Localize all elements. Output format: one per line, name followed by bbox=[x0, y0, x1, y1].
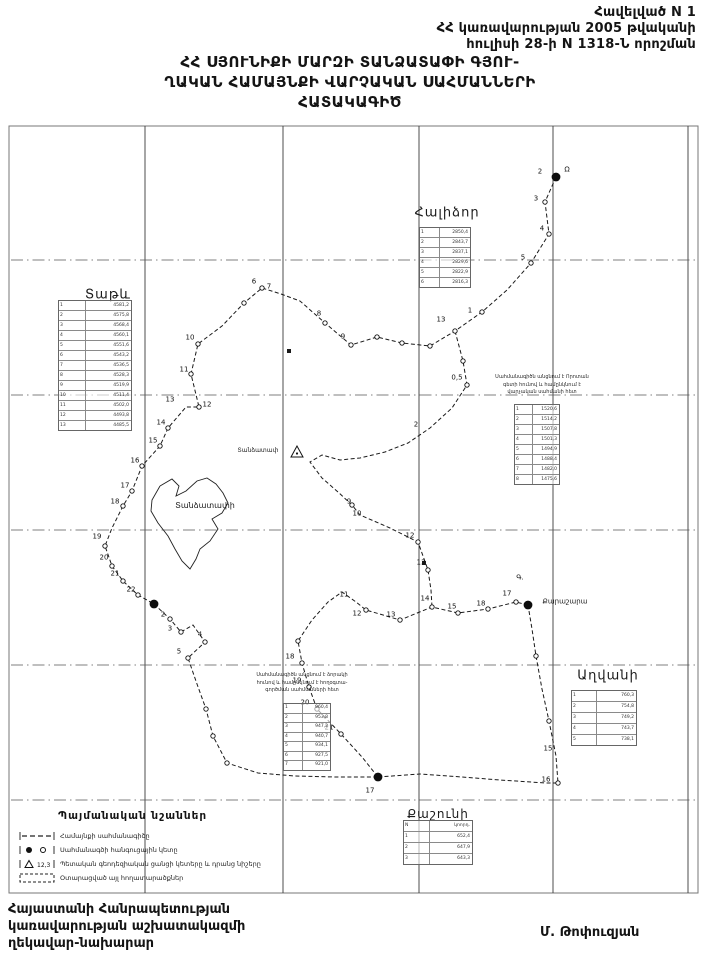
table-cell-value: 947,2 bbox=[303, 723, 330, 732]
table-row: 6927,5 bbox=[284, 751, 330, 761]
vertex-label: 4 bbox=[540, 226, 544, 233]
table-cell-value: 1514,2 bbox=[533, 415, 559, 424]
table-cell-number: 5 bbox=[59, 341, 86, 350]
table-cell-number: 7 bbox=[59, 361, 86, 370]
boundary-vertex bbox=[400, 341, 404, 345]
table-cell-value: 4493,8 bbox=[86, 411, 131, 420]
vertex-label: 14 bbox=[421, 596, 430, 603]
boundary-vertex bbox=[456, 611, 460, 615]
table-row: 2754,8 bbox=[572, 701, 636, 712]
table-cell-value: 940,7 bbox=[303, 733, 330, 742]
vertex-label: 13 bbox=[387, 612, 396, 619]
vertex-label: 1 bbox=[468, 308, 472, 315]
table-row: 42829,6 bbox=[420, 257, 470, 267]
table-row: 64543,2 bbox=[59, 350, 131, 360]
table-cell-number: 8 bbox=[59, 371, 86, 380]
vertex-label: 19 bbox=[93, 534, 102, 541]
table-cell-number: 1 bbox=[515, 405, 533, 414]
table-cell-number: 1 bbox=[59, 301, 86, 310]
vertex-label: 0,5 bbox=[451, 375, 462, 382]
table-cell-number: 3 bbox=[420, 248, 440, 257]
boundary-vertex bbox=[430, 605, 434, 609]
table-cell-value: 1501,3 bbox=[533, 435, 559, 444]
table-row: 51494,9 bbox=[515, 444, 559, 454]
table-cell-number: 6 bbox=[59, 351, 86, 360]
table-row: 61488,4 bbox=[515, 454, 559, 464]
boundary-vertex bbox=[203, 640, 207, 644]
table-cell-number: 5 bbox=[515, 445, 533, 454]
boundary-vertex bbox=[225, 761, 229, 765]
vertex-label: 18 bbox=[111, 499, 120, 506]
boundary-vertex bbox=[364, 608, 368, 612]
table-row: 41501,3 bbox=[515, 434, 559, 444]
table-cell-number: 2 bbox=[404, 843, 430, 853]
settlement-dot bbox=[552, 173, 561, 182]
table-row: 84528,3 bbox=[59, 370, 131, 380]
legend-label: Սահմանագծի հանգուցային կետը bbox=[60, 846, 178, 854]
table-cell-value: 960,4 bbox=[303, 704, 330, 713]
table-row: 3749,2 bbox=[572, 712, 636, 723]
boundary-vertex bbox=[416, 540, 420, 544]
place-label: Քարաշարա bbox=[543, 599, 588, 606]
vertex-label: 2 bbox=[414, 422, 418, 429]
boundary-vertex bbox=[514, 600, 518, 604]
table-cell-value: 2816,3 bbox=[440, 278, 470, 287]
vertex-label: Գ. bbox=[516, 575, 524, 582]
table-cell-value: 2822,9 bbox=[440, 268, 470, 277]
table-cell-number: 5 bbox=[284, 742, 303, 751]
table-row: 74536,5 bbox=[59, 360, 131, 370]
boundary-vertex bbox=[204, 707, 208, 711]
table-row: 1960,4 bbox=[284, 704, 330, 713]
table-row: 94519,9 bbox=[59, 380, 131, 390]
vertex-label: 5 bbox=[177, 649, 181, 656]
table-cell-number: N bbox=[404, 821, 430, 831]
vertex-label: 14 bbox=[157, 420, 166, 427]
table-cell-number: 7 bbox=[284, 761, 303, 770]
table-row: 7921,0 bbox=[284, 760, 330, 770]
boundary-vertex bbox=[242, 301, 246, 305]
table-cell-value: 1494,9 bbox=[533, 445, 559, 454]
boundary-vertex bbox=[110, 564, 114, 568]
table-cell-value: 1520,6 bbox=[533, 405, 559, 414]
table-row: 5934,1 bbox=[284, 741, 330, 751]
vertex-label: 6 bbox=[252, 279, 256, 286]
table-row: 104511,4 bbox=[59, 390, 131, 400]
note-line: վարչական սահմանի հետ bbox=[486, 389, 598, 397]
table-cell-value: 1482,0 bbox=[533, 465, 559, 474]
vertex-label: 17 bbox=[503, 591, 512, 598]
table-row: 14581,2 bbox=[59, 301, 131, 310]
settlement-dot bbox=[374, 773, 383, 782]
boundary-vertex bbox=[547, 232, 551, 236]
table-row: 3947,2 bbox=[284, 722, 330, 732]
vertex-label: 13 bbox=[417, 560, 426, 567]
table-cell-value: 4543,2 bbox=[86, 351, 131, 360]
vertex-label: 18 bbox=[477, 601, 486, 608]
table-row: 34568,4 bbox=[59, 320, 131, 330]
boundary-vertex bbox=[349, 343, 353, 347]
table-row: 52822,9 bbox=[420, 267, 470, 277]
footer-line-2: կառավարության աշխատակազմի bbox=[8, 918, 245, 935]
table-cell-number: 5 bbox=[572, 735, 597, 745]
table-row: 4940,7 bbox=[284, 732, 330, 742]
vertex-label: 15 bbox=[544, 746, 553, 753]
boundary-vertex bbox=[130, 489, 134, 493]
coordinate-table: 1960,42953,83947,24940,75934,16927,57921… bbox=[283, 703, 331, 771]
table-row: Nկոորդ. bbox=[404, 821, 472, 831]
table-cell-value: 2837,1 bbox=[440, 248, 470, 257]
table-cell-value: 743,7 bbox=[597, 724, 636, 734]
table-row: 5738,1 bbox=[572, 734, 636, 745]
table-cell-number: 1 bbox=[420, 228, 440, 237]
table-cell-number: 11 bbox=[59, 401, 86, 410]
vertex-label: 4 bbox=[198, 632, 202, 639]
place-label: Տանձատափ bbox=[238, 448, 279, 454]
table-row: 31507,8 bbox=[515, 424, 559, 434]
vertex-label: 3 bbox=[534, 196, 538, 203]
table-cell-value: 760,3 bbox=[597, 691, 636, 701]
vertex-label: 21 bbox=[111, 571, 120, 578]
vertex-label: 15 bbox=[149, 438, 158, 445]
square-mark bbox=[287, 349, 291, 353]
table-row: 21514,2 bbox=[515, 414, 559, 424]
legend-title: Պայմանական նշաններ bbox=[58, 810, 306, 822]
table-cell-number: 2 bbox=[420, 238, 440, 247]
table-cell-value: 643,3 bbox=[430, 854, 472, 864]
boundary-vertex bbox=[428, 344, 432, 348]
table-cell-number: 12 bbox=[59, 411, 86, 420]
boundary-vertex bbox=[179, 630, 183, 634]
table-row: 81475,6 bbox=[515, 474, 559, 484]
table-row: 54551,6 bbox=[59, 340, 131, 350]
note-line: գետի հունով և համընկնում է bbox=[486, 382, 598, 390]
footer-line-1: Հայաստանի Հանրապետության bbox=[8, 901, 245, 918]
boundary-vertex bbox=[140, 464, 144, 468]
vertex-label: Ω bbox=[564, 167, 569, 174]
table-cell-value: 4560,1 bbox=[86, 331, 131, 340]
vertex-label: 13 bbox=[437, 317, 446, 324]
table-cell-number: 2 bbox=[284, 714, 303, 723]
table-cell-value: 749,2 bbox=[597, 713, 636, 723]
vertex-label: 11 bbox=[180, 367, 189, 374]
vertex-label: 2 bbox=[538, 169, 542, 176]
boundary-vertex bbox=[375, 335, 379, 339]
coordinate-table: 12850,422843,732837,142829,652822,962816… bbox=[419, 227, 471, 288]
vertex-label: 16 bbox=[542, 777, 551, 784]
table-cell-number: 9 bbox=[59, 381, 86, 390]
legend-label: Օտարացված այլ հողատարածքներ bbox=[60, 874, 183, 882]
boundary-vertex bbox=[461, 359, 465, 363]
vertex-label: 10 bbox=[353, 511, 362, 518]
table-cell-number: 1 bbox=[572, 691, 597, 701]
vertex-label: 18 bbox=[286, 654, 295, 661]
vertex-label: 20 bbox=[100, 555, 109, 562]
table-cell-value: 4536,5 bbox=[86, 361, 131, 370]
table-cell-number: 6 bbox=[284, 752, 303, 761]
table-row: 32837,1 bbox=[420, 247, 470, 257]
table-cell-number: 13 bbox=[59, 421, 86, 430]
boundary-vertex bbox=[398, 618, 402, 622]
vertex-label: 15 bbox=[448, 604, 457, 611]
table-row: 3643,3 bbox=[404, 853, 472, 864]
table-cell-number: 4 bbox=[284, 733, 303, 742]
table-cell-value: 647,9 bbox=[430, 843, 472, 853]
table-cell-number: 4 bbox=[572, 724, 597, 734]
note-line: Սահմանագիծն անցնում է Որոտան bbox=[486, 374, 598, 382]
table-cell-value: 953,8 bbox=[303, 714, 330, 723]
village-polygon bbox=[151, 478, 228, 569]
table-cell-number: 4 bbox=[59, 331, 86, 340]
table-row: 134485,5 bbox=[59, 420, 131, 430]
vertex-label: 12 bbox=[406, 533, 415, 540]
vertex-label: 2 bbox=[161, 612, 165, 619]
table-cell-number: 6 bbox=[420, 278, 440, 287]
boundary-vertex bbox=[534, 654, 538, 658]
boundary-vertex bbox=[323, 321, 327, 325]
boundary-vertex bbox=[186, 656, 190, 660]
signature-name: Մ. Թոփուզյան bbox=[540, 925, 639, 940]
boundary-vertex bbox=[158, 444, 162, 448]
settlement-dot bbox=[150, 600, 159, 609]
boundary-inner-east bbox=[310, 331, 467, 607]
note-line: հունով և համընկնում է հողօգտա- bbox=[250, 680, 354, 688]
boundary-vertex bbox=[168, 617, 172, 621]
vertex-label: 11 bbox=[340, 592, 349, 599]
boundary-vertex bbox=[189, 372, 193, 376]
vertex-label: 10 bbox=[186, 335, 195, 342]
table-cell-number: 7 bbox=[515, 465, 533, 474]
table-row: 124493,8 bbox=[59, 410, 131, 420]
table-row: 44560,1 bbox=[59, 330, 131, 340]
table-cell-number: 4 bbox=[420, 258, 440, 267]
boundary-vertex bbox=[260, 286, 264, 290]
table-cell-value: 4568,4 bbox=[86, 321, 131, 330]
table-cell-value: 934,1 bbox=[303, 742, 330, 751]
table-cell-value: 4575,8 bbox=[86, 311, 131, 320]
boundary-vertex bbox=[339, 732, 343, 736]
boundary-vertex bbox=[121, 504, 125, 508]
boundary-vertex bbox=[300, 661, 304, 665]
legend: Պայմանական նշաններ Համայնքի սահմանագիծը … bbox=[16, 810, 306, 885]
note-line: գործման սահմանների հետ bbox=[250, 687, 354, 695]
boundary-vertex bbox=[121, 579, 125, 583]
boundary-vertex bbox=[296, 639, 300, 643]
note-line: Սահմանագիծն անցնում է ձորակի bbox=[250, 672, 354, 680]
vertex-label: 12 bbox=[353, 611, 362, 618]
table-cell-number: 4 bbox=[515, 435, 533, 444]
vertex-label: 17 bbox=[121, 483, 130, 490]
geodetic-triangle-icon bbox=[291, 446, 303, 457]
table-cell-number: 3 bbox=[515, 425, 533, 434]
table-cell-number: 3 bbox=[59, 321, 86, 330]
vertex-label: 17 bbox=[366, 788, 375, 795]
table-cell-value: 4519,9 bbox=[86, 381, 131, 390]
table-cell-number: 3 bbox=[404, 854, 430, 864]
table-cell-value: 4581,2 bbox=[86, 301, 131, 310]
vertex-label: 3 bbox=[168, 626, 172, 633]
table-cell-value: 4528,3 bbox=[86, 371, 131, 380]
table-cell-value: 2850,4 bbox=[440, 228, 470, 237]
table-cell-number: 6 bbox=[515, 455, 533, 464]
table-cell-value: 4502,0 bbox=[86, 401, 131, 410]
table-cell-value: 652,4 bbox=[430, 832, 472, 842]
table-row: 12850,4 bbox=[420, 228, 470, 237]
boundary-vertex bbox=[547, 719, 551, 723]
vertex-label: 9 bbox=[341, 334, 345, 341]
table-cell-number: 8 bbox=[515, 475, 533, 484]
table-cell-value: 754,8 bbox=[597, 702, 636, 712]
note-block: Սահմանագիծն անցնում է Որոտանգետի հունով … bbox=[486, 374, 598, 397]
table-cell-value: 4551,6 bbox=[86, 341, 131, 350]
table-cell-value: 738,1 bbox=[597, 735, 636, 745]
boundary-vertex bbox=[426, 568, 430, 572]
boundary-vertex bbox=[196, 342, 200, 346]
table-cell-number: 2 bbox=[515, 415, 533, 424]
table-cell-number: 5 bbox=[420, 268, 440, 277]
table-cell-number: 1 bbox=[284, 704, 303, 713]
table-cell-number: 2 bbox=[572, 702, 597, 712]
table-row: 24575,8 bbox=[59, 310, 131, 320]
geodetic-mark-text: 12,3 bbox=[37, 862, 51, 869]
boundary-vertex bbox=[556, 781, 560, 785]
vertex-label: 16 bbox=[131, 458, 140, 465]
table-cell-value: կոորդ. bbox=[430, 821, 472, 831]
table-cell-value: 4511,4 bbox=[86, 391, 131, 400]
table-row: 71482,0 bbox=[515, 464, 559, 474]
table-cell-value: 1475,6 bbox=[533, 475, 559, 484]
boundary-vertex bbox=[543, 200, 547, 204]
place-label: Հալիձոր bbox=[414, 207, 479, 220]
boundary-vertex bbox=[480, 310, 484, 314]
boundary-vertex bbox=[103, 544, 107, 548]
boundary-vertex bbox=[136, 593, 140, 597]
boundary-vertex bbox=[465, 383, 469, 387]
table-row: 2953,8 bbox=[284, 713, 330, 723]
place-label: Աղվանի bbox=[577, 670, 639, 683]
table-cell-value: 2843,7 bbox=[440, 238, 470, 247]
vertex-label: 13 bbox=[166, 397, 175, 404]
coordinate-table: 1760,32754,83749,24743,75738,1 bbox=[571, 690, 637, 746]
legend-label: Համայնքի սահմանագիծը bbox=[60, 832, 150, 840]
table-row: 22843,7 bbox=[420, 237, 470, 247]
vertex-label: 5 bbox=[521, 255, 525, 262]
table-cell-value: 4485,5 bbox=[86, 421, 131, 430]
coordinate-table: 11520,621514,231507,841501,351494,961488… bbox=[514, 404, 560, 485]
table-cell-value: 1507,8 bbox=[533, 425, 559, 434]
table-cell-value: 921,0 bbox=[303, 761, 330, 770]
boundary-vertex bbox=[529, 261, 533, 265]
table-row: 4743,7 bbox=[572, 723, 636, 734]
table-row: 1760,3 bbox=[572, 691, 636, 701]
table-cell-number: 1 bbox=[404, 832, 430, 842]
table-row: 62816,3 bbox=[420, 277, 470, 287]
boundary-vertex bbox=[211, 734, 215, 738]
table-cell-number: 2 bbox=[59, 311, 86, 320]
boundary-south-east bbox=[378, 605, 558, 783]
legend-item-allotted: Օտարացված այլ հողատարածքներ bbox=[16, 871, 306, 885]
allotted-area-icon bbox=[16, 869, 60, 888]
table-cell-number: 3 bbox=[572, 713, 597, 723]
place-label: Քաշունի bbox=[407, 808, 469, 820]
geodetic-triangle-center bbox=[296, 452, 298, 454]
boundary-vertex bbox=[197, 405, 201, 409]
table-row: 2647,9 bbox=[404, 842, 472, 853]
vertex-label: 22 bbox=[127, 587, 136, 594]
vertex-label: 12 bbox=[203, 402, 212, 409]
footer-office: Հայաստանի Հանրապետության կառավարության ա… bbox=[8, 901, 245, 952]
boundary-vertex bbox=[166, 426, 170, 430]
table-cell-value: 2829,6 bbox=[440, 258, 470, 267]
table-row: 1652,4 bbox=[404, 831, 472, 842]
table-cell-number: 10 bbox=[59, 391, 86, 400]
coordinate-table: 14581,224575,834568,444560,154551,664543… bbox=[58, 300, 132, 431]
vertex-label: 7 bbox=[267, 284, 271, 291]
place-label: Տանձատափի bbox=[175, 502, 235, 510]
scanned-map-page: Հավելված N 1 ՀՀ կառավարության 2005 թվակա… bbox=[0, 0, 704, 955]
table-cell-number: 3 bbox=[284, 723, 303, 732]
footer-line-3: ղեկավար-նախարար bbox=[8, 935, 245, 952]
coordinate-table: Nկոորդ.1652,42647,93643,3 bbox=[403, 820, 473, 865]
note-block: Սահմանագիծն անցնում է ձորակիհունով և համ… bbox=[250, 672, 354, 695]
settlement-dot bbox=[524, 601, 533, 610]
table-row: 11520,6 bbox=[515, 405, 559, 414]
legend-label: Պետական գեոդեզիական ցանցի կետերը և դրանց… bbox=[60, 860, 261, 868]
table-cell-value: 1488,4 bbox=[533, 455, 559, 464]
vertex-label: 9 bbox=[347, 499, 351, 506]
table-cell-value: 927,5 bbox=[303, 752, 330, 761]
vertex-label: 8 bbox=[317, 311, 321, 318]
boundary-vertex bbox=[486, 607, 490, 611]
boundary-vertex bbox=[453, 329, 457, 333]
table-row: 114502,0 bbox=[59, 400, 131, 410]
